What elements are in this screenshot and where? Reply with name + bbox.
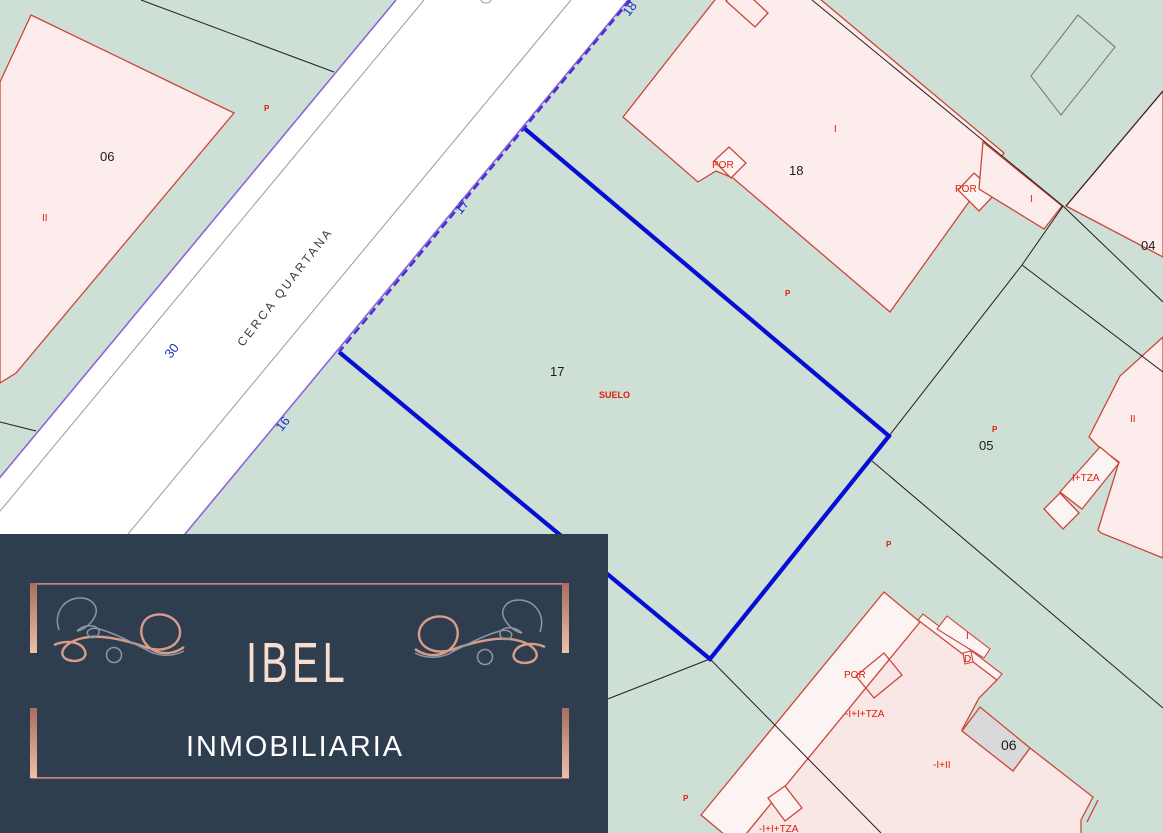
svg-text:D: D xyxy=(964,654,971,665)
svg-text:-I+I+TZA: -I+I+TZA xyxy=(845,709,885,720)
svg-text:I: I xyxy=(966,631,969,642)
svg-text:P: P xyxy=(264,104,270,113)
svg-text:06: 06 xyxy=(100,149,114,164)
svg-text:17: 17 xyxy=(550,364,564,379)
svg-text:II: II xyxy=(42,213,48,224)
svg-text:05: 05 xyxy=(979,438,993,453)
svg-text:18: 18 xyxy=(789,163,803,178)
svg-text:II: II xyxy=(1130,414,1136,425)
svg-text:I+TZA: I+TZA xyxy=(1072,473,1100,484)
svg-text:POR: POR xyxy=(955,184,977,195)
svg-text:I: I xyxy=(1030,194,1033,205)
svg-text:-I+II: -I+II xyxy=(933,760,951,771)
svg-text:P: P xyxy=(886,540,892,549)
svg-text:POR: POR xyxy=(844,670,866,681)
svg-text:IBEL: IBEL xyxy=(246,631,349,695)
svg-text:I: I xyxy=(834,124,837,135)
svg-text:INMOBILIARIA: INMOBILIARIA xyxy=(186,731,404,763)
svg-text:06: 06 xyxy=(1001,737,1017,753)
svg-text:P: P xyxy=(992,425,998,434)
svg-text:-I+I+TZA: -I+I+TZA xyxy=(759,824,799,833)
svg-text:P: P xyxy=(683,794,689,803)
svg-text:POR: POR xyxy=(712,160,734,171)
svg-text:SUELO: SUELO xyxy=(599,390,630,400)
svg-text:04: 04 xyxy=(1141,238,1155,253)
svg-text:P: P xyxy=(785,289,791,298)
